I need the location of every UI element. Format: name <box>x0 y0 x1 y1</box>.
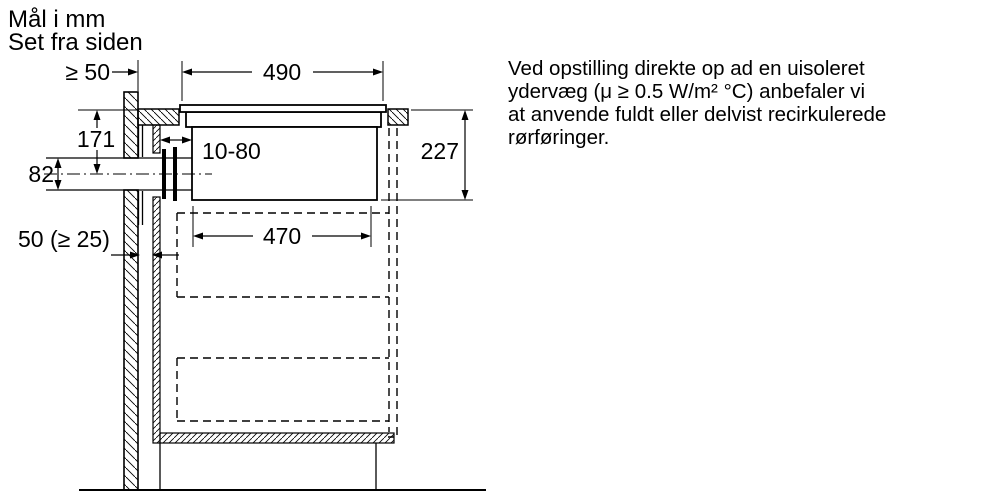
note-line-3: at anvende fuldt eller delvist recirkule… <box>508 103 886 126</box>
note-line-4: rørføringer. <box>508 126 609 149</box>
dim-wall-to-cabinet-label: 50 (≥ 25) <box>18 226 110 252</box>
installation-diagram-page: Mål i mm Set fra siden Ved opstilling di… <box>0 0 1000 500</box>
dim-worktop-to-duct-axis-label: 171 <box>77 126 115 152</box>
dim-gap-range-label: 10-80 <box>202 138 261 164</box>
dim-duct-opening-height-label: 82 <box>28 161 54 187</box>
worktop-left <box>138 109 179 125</box>
dim-installation-depth-label: 227 <box>421 138 459 164</box>
hob-frame <box>186 112 381 127</box>
note-line-2: ydervæg (μ ≥ 0.5 W/m² °C) anbefaler vi <box>508 80 865 103</box>
title-view: Set fra siden <box>8 29 143 56</box>
wall-below-opening <box>124 190 138 490</box>
glass-ceramic-top <box>180 105 386 112</box>
dim-lower-housing-width-label: 470 <box>263 223 301 249</box>
duct-flange-inner <box>162 149 166 199</box>
wall-above-opening <box>124 92 138 158</box>
cabinet-shelf <box>160 433 394 443</box>
side-panel-lower <box>153 197 160 443</box>
dim-rear-clearance-label: ≥ 50 <box>65 59 110 85</box>
note-line-1: Ved opstilling direkte op ad en uisolere… <box>508 57 865 80</box>
side-panel-upper <box>153 125 160 153</box>
wall <box>124 92 138 490</box>
worktop-right <box>388 109 408 125</box>
installation-diagram: Mål i mm Set fra siden Ved opstilling di… <box>0 0 1000 500</box>
duct-flange-outer <box>173 147 177 201</box>
dim-cutout-width-label: 490 <box>263 59 301 85</box>
